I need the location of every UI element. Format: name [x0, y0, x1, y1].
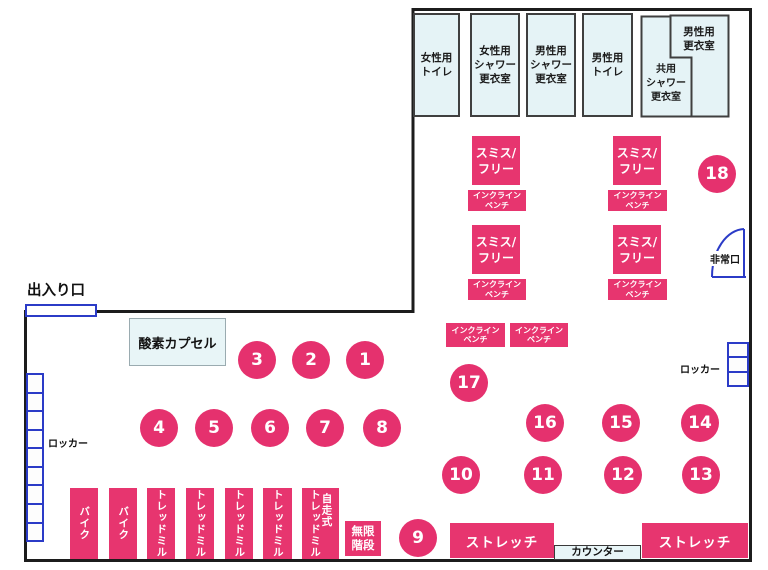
room-label-line: 男性用	[592, 51, 624, 65]
machine-bike-2: バイク	[109, 488, 137, 559]
smith-free-label-line: スミス/	[617, 145, 657, 161]
station-circle-4: 4	[140, 409, 178, 447]
incline-bench-label-line: インクライン	[473, 280, 521, 290]
smith-free-label-line: フリー	[478, 161, 514, 177]
infinite-stairs: 無限 階段	[345, 521, 381, 556]
room-shared-shower-locker-label: 共用 シャワー 更衣室	[640, 63, 692, 105]
station-number: 1	[359, 350, 371, 370]
oxygen-capsule: 酸素カプセル	[129, 318, 226, 366]
locker-bank-left	[26, 373, 44, 542]
locker-label-right: ロッカー	[680, 361, 720, 376]
locker-label-text: ロッカー	[48, 439, 88, 450]
station-number: 9	[412, 528, 424, 548]
room-label-line: シャワー	[646, 77, 686, 91]
smith-free-label-line: フリー	[478, 250, 514, 266]
smith-free-rack-3: スミス/ フリー	[472, 225, 520, 274]
locker-cell	[26, 431, 44, 450]
room-label-line: 更衣室	[479, 72, 511, 86]
machine-label: トレッドミル	[310, 489, 321, 558]
smith-free-label-line: フリー	[619, 161, 655, 177]
incline-bench-2: インクライン ベンチ	[608, 190, 667, 211]
entrance-label-text: 出入り口	[27, 283, 85, 299]
incline-bench-label-line: インクライン	[452, 326, 500, 336]
locker-bank-right	[727, 342, 749, 387]
station-circle-10: 10	[442, 456, 480, 494]
emergency-exit-label-text: 非常口	[710, 255, 740, 266]
stretch-area-left: ストレッチ	[450, 523, 554, 558]
incline-bench-label-line: インクライン	[614, 191, 662, 201]
station-number: 18	[705, 164, 729, 184]
locker-cell	[26, 449, 44, 468]
locker-cell	[26, 524, 44, 543]
station-number: 3	[251, 350, 263, 370]
gym-floor-map: 女性用 トイレ 女性用 シャワー 更衣室 男性用 シャワー 更衣室 男性用 トイ…	[0, 0, 768, 570]
locker-cell	[26, 375, 44, 394]
incline-bench-label-line: インクライン	[515, 326, 563, 336]
machine-label: バイク	[79, 506, 90, 541]
room-label-line: 更衣室	[683, 39, 715, 53]
entrance-door	[25, 304, 97, 317]
station-number: 5	[208, 418, 220, 438]
station-circle-12: 12	[604, 456, 642, 494]
counter-desk: カウンター	[554, 545, 641, 560]
smith-free-rack-2: スミス/ フリー	[613, 136, 661, 185]
station-number: 6	[264, 418, 276, 438]
machine-sublabel: 自走式	[321, 493, 332, 528]
room-label-line: 女性用	[421, 51, 453, 65]
locker-label-text: ロッカー	[680, 365, 720, 376]
room-label-line: 共用	[656, 63, 676, 77]
incline-bench-6: インクライン ベンチ	[510, 323, 568, 347]
station-number: 4	[153, 418, 165, 438]
station-circle-9: 9	[399, 519, 437, 557]
locker-cell	[26, 468, 44, 487]
machine-label: トレッドミル	[234, 489, 245, 558]
station-circle-18: 18	[698, 155, 736, 193]
room-label-line: トイレ	[592, 65, 624, 79]
locker-cell	[26, 394, 44, 413]
station-circle-7: 7	[306, 409, 344, 447]
smith-free-label-line: スミス/	[476, 145, 516, 161]
stretch-label: ストレッチ	[466, 531, 539, 551]
locker-cell	[26, 486, 44, 505]
smith-free-label-line: フリー	[619, 250, 655, 266]
machine-treadmill-4: トレッドミル	[263, 488, 292, 559]
locker-cell	[727, 373, 749, 387]
incline-bench-label-line: ベンチ	[626, 290, 650, 300]
machine-label: トレッドミル	[272, 489, 283, 558]
station-number: 12	[611, 465, 635, 485]
station-number: 17	[457, 373, 481, 393]
oxygen-capsule-label: 酸素カプセル	[138, 333, 216, 352]
station-number: 10	[449, 465, 473, 485]
smith-free-label-line: スミス/	[476, 234, 516, 250]
smith-free-rack-1: スミス/ フリー	[472, 136, 520, 185]
incline-bench-4: インクライン ベンチ	[608, 279, 667, 300]
emergency-exit-label: 非常口	[709, 251, 741, 266]
station-number: 13	[689, 465, 713, 485]
room-mens-toilet: 男性用 トイレ	[582, 13, 633, 117]
counter-label: カウンター	[571, 546, 624, 559]
incline-bench-label-line: ベンチ	[527, 335, 551, 345]
station-number: 14	[688, 413, 712, 433]
room-label-line: トイレ	[421, 65, 453, 79]
infinite-stairs-label-line: 階段	[352, 539, 375, 553]
room-womens-toilet: 女性用 トイレ	[413, 13, 460, 117]
room-label-line: シャワー	[530, 58, 572, 72]
incline-bench-3: インクライン ベンチ	[468, 279, 526, 300]
station-number: 2	[305, 350, 317, 370]
station-circle-11: 11	[524, 456, 562, 494]
machine-label: バイク	[118, 506, 129, 541]
station-circle-15: 15	[602, 404, 640, 442]
station-circle-2: 2	[292, 341, 330, 379]
station-circle-6: 6	[251, 409, 289, 447]
stretch-area-right: ストレッチ	[642, 523, 748, 558]
station-circle-17: 17	[450, 364, 488, 402]
room-label-line: シャワー	[474, 58, 516, 72]
stretch-label: ストレッチ	[659, 531, 732, 551]
machine-label: トレッドミル	[156, 489, 167, 558]
incline-bench-label-line: インクライン	[614, 280, 662, 290]
machine-treadmill-self-propelled: トレッドミル 自走式	[302, 488, 339, 559]
machine-bike-1: バイク	[70, 488, 98, 559]
station-circle-1: 1	[346, 341, 384, 379]
incline-bench-label-line: ベンチ	[626, 201, 650, 211]
station-number: 15	[609, 413, 633, 433]
room-womens-shower-locker: 女性用 シャワー 更衣室	[470, 13, 520, 117]
station-number: 7	[319, 418, 331, 438]
station-circle-8: 8	[363, 409, 401, 447]
infinite-stairs-label-line: 無限	[352, 525, 375, 539]
station-circle-13: 13	[682, 456, 720, 494]
station-circle-5: 5	[195, 409, 233, 447]
station-circle-14: 14	[681, 404, 719, 442]
incline-bench-label-line: インクライン	[473, 191, 521, 201]
station-number: 11	[531, 465, 555, 485]
station-number: 16	[533, 413, 557, 433]
station-circle-3: 3	[238, 341, 276, 379]
room-mens-shower-locker: 男性用 シャワー 更衣室	[526, 13, 576, 117]
locker-cell	[727, 358, 749, 372]
locker-cell	[727, 344, 749, 358]
station-circle-16: 16	[526, 404, 564, 442]
room-label-line: 男性用	[683, 25, 715, 39]
incline-bench-label-line: ベンチ	[485, 290, 509, 300]
room-label-line: 更衣室	[651, 91, 681, 105]
room-label-line: 女性用	[479, 44, 511, 58]
machine-treadmill-2: トレッドミル	[186, 488, 214, 559]
incline-bench-1: インクライン ベンチ	[468, 190, 526, 211]
locker-cell	[26, 412, 44, 431]
incline-bench-label-line: ベンチ	[485, 201, 509, 211]
incline-bench-5: インクライン ベンチ	[446, 323, 505, 347]
smith-free-rack-4: スミス/ フリー	[613, 225, 661, 274]
machine-label: トレッドミル	[195, 489, 206, 558]
station-number: 8	[376, 418, 388, 438]
smith-free-label-line: スミス/	[617, 234, 657, 250]
room-label-line: 男性用	[535, 44, 567, 58]
incline-bench-label-line: ベンチ	[464, 335, 488, 345]
room-label-line: 更衣室	[535, 72, 567, 86]
locker-label-left: ロッカー	[48, 435, 88, 450]
machine-treadmill-3: トレッドミル	[225, 488, 253, 559]
room-mens-locker-room-label: 男性用 更衣室	[672, 25, 726, 53]
locker-cell	[26, 505, 44, 524]
entrance-label: 出入り口	[27, 279, 85, 300]
machine-treadmill-1: トレッドミル	[147, 488, 175, 559]
